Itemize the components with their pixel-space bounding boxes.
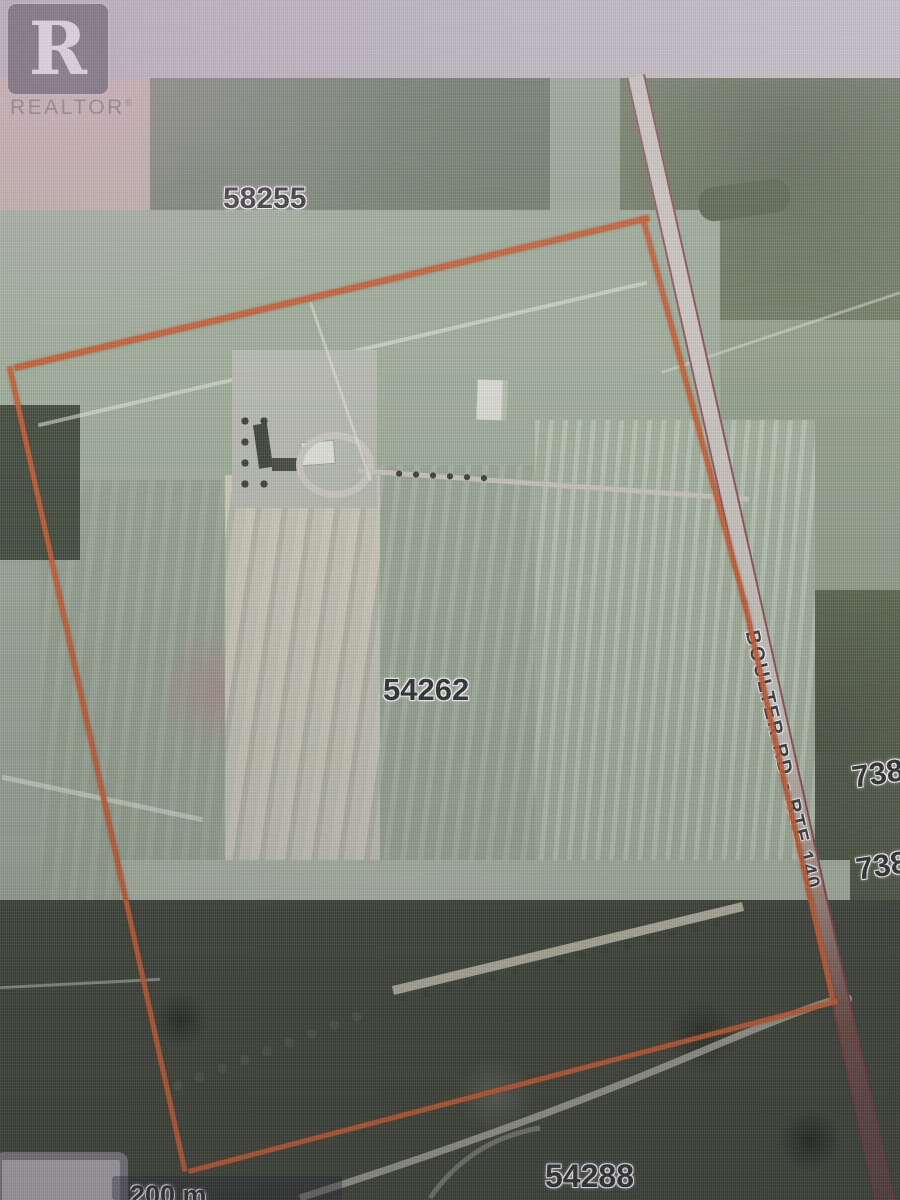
registered-trademark-symbol: ® [125, 98, 135, 109]
realtor-logo: R [8, 4, 108, 94]
map-control-thumbnail[interactable] [0, 1152, 128, 1200]
parcel-label-east-partial: 738 [854, 844, 900, 888]
tree-cluster-west [0, 405, 80, 560]
barn-roof [476, 379, 507, 420]
parcel-label-subject: 54262 [383, 672, 469, 708]
parcel-label-east-partial: 738 [850, 752, 900, 796]
realtor-logo-letter: R [29, 12, 87, 86]
driveway-loop [296, 432, 374, 498]
screen-top-band [0, 0, 900, 84]
scale-label: 200 m [130, 1180, 207, 1200]
realtor-wordmark: REALTOR® [10, 96, 135, 120]
parcel-label-south: 54288 [545, 1158, 634, 1195]
parcel-label-north: 58255 [223, 182, 306, 216]
aerial-parcel-map-photo: BOULTER RD - RTE 140 58255 54262 54288 7… [0, 0, 900, 1200]
